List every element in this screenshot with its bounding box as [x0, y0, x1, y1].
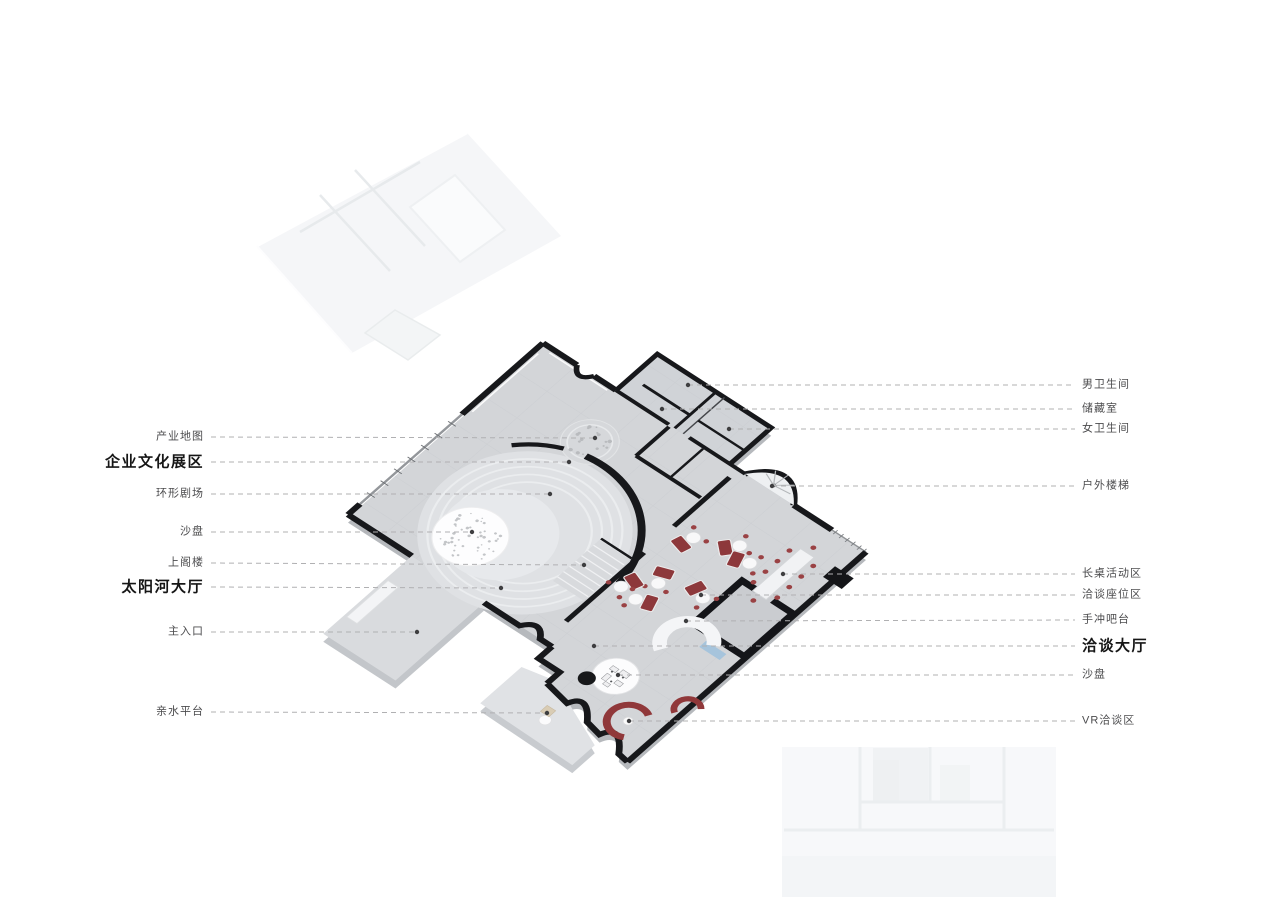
right-label-9: VR洽谈区: [1082, 716, 1135, 727]
left-label-1: 企业文化展区: [0, 455, 204, 470]
leader-dot: [567, 460, 571, 464]
right-label-4: 长桌活动区: [1082, 569, 1142, 580]
leader-dot: [699, 593, 703, 597]
right-label-0: 男卫生间: [1082, 380, 1130, 391]
left-label-4: 上阁楼: [0, 558, 204, 569]
leader-dot: [548, 492, 552, 496]
left-label-6: 主入口: [0, 627, 204, 638]
right-label-1: 储藏室: [1082, 404, 1118, 415]
right-label-5: 洽谈座位区: [1082, 590, 1142, 601]
leader-dot: [684, 619, 688, 623]
plan-artwork: [0, 0, 1280, 905]
right-label-6: 手冲吧台: [1082, 615, 1130, 626]
main-floor-plan: [242, 298, 921, 816]
floorplan-diagram: 产业地图企业文化展区环形剧场沙盘上阁楼太阳河大厅主入口亲水平台男卫生间储藏室女卫…: [0, 0, 1280, 905]
leader-dot: [627, 719, 631, 723]
leader-dot: [616, 673, 620, 677]
leader-dot: [781, 572, 785, 576]
leader-dot: [660, 407, 664, 411]
right-label-3: 户外楼梯: [1082, 481, 1130, 492]
upper-floor-plate: [257, 133, 561, 360]
left-label-2: 环形剧场: [0, 489, 204, 500]
leader-dot: [499, 586, 503, 590]
leader-dot: [470, 530, 474, 534]
right-label-2: 女卫生间: [1082, 424, 1130, 435]
leader-dot: [686, 383, 690, 387]
right-label-8: 沙盘: [1082, 670, 1106, 681]
left-label-7: 亲水平台: [0, 707, 204, 718]
right-label-7: 洽谈大厅: [1082, 639, 1148, 654]
leader-dot: [770, 484, 774, 488]
leader-dot: [593, 436, 597, 440]
leader-dot: [582, 563, 586, 567]
leader-dot: [415, 630, 419, 634]
leader-dot: [545, 711, 549, 715]
left-label-3: 沙盘: [0, 527, 204, 538]
leader-dot: [727, 427, 731, 431]
leader-dot: [592, 644, 596, 648]
left-label-5: 太阳河大厅: [0, 580, 204, 595]
left-label-0: 产业地图: [0, 432, 204, 443]
lower-floor-plate: [782, 745, 1056, 897]
